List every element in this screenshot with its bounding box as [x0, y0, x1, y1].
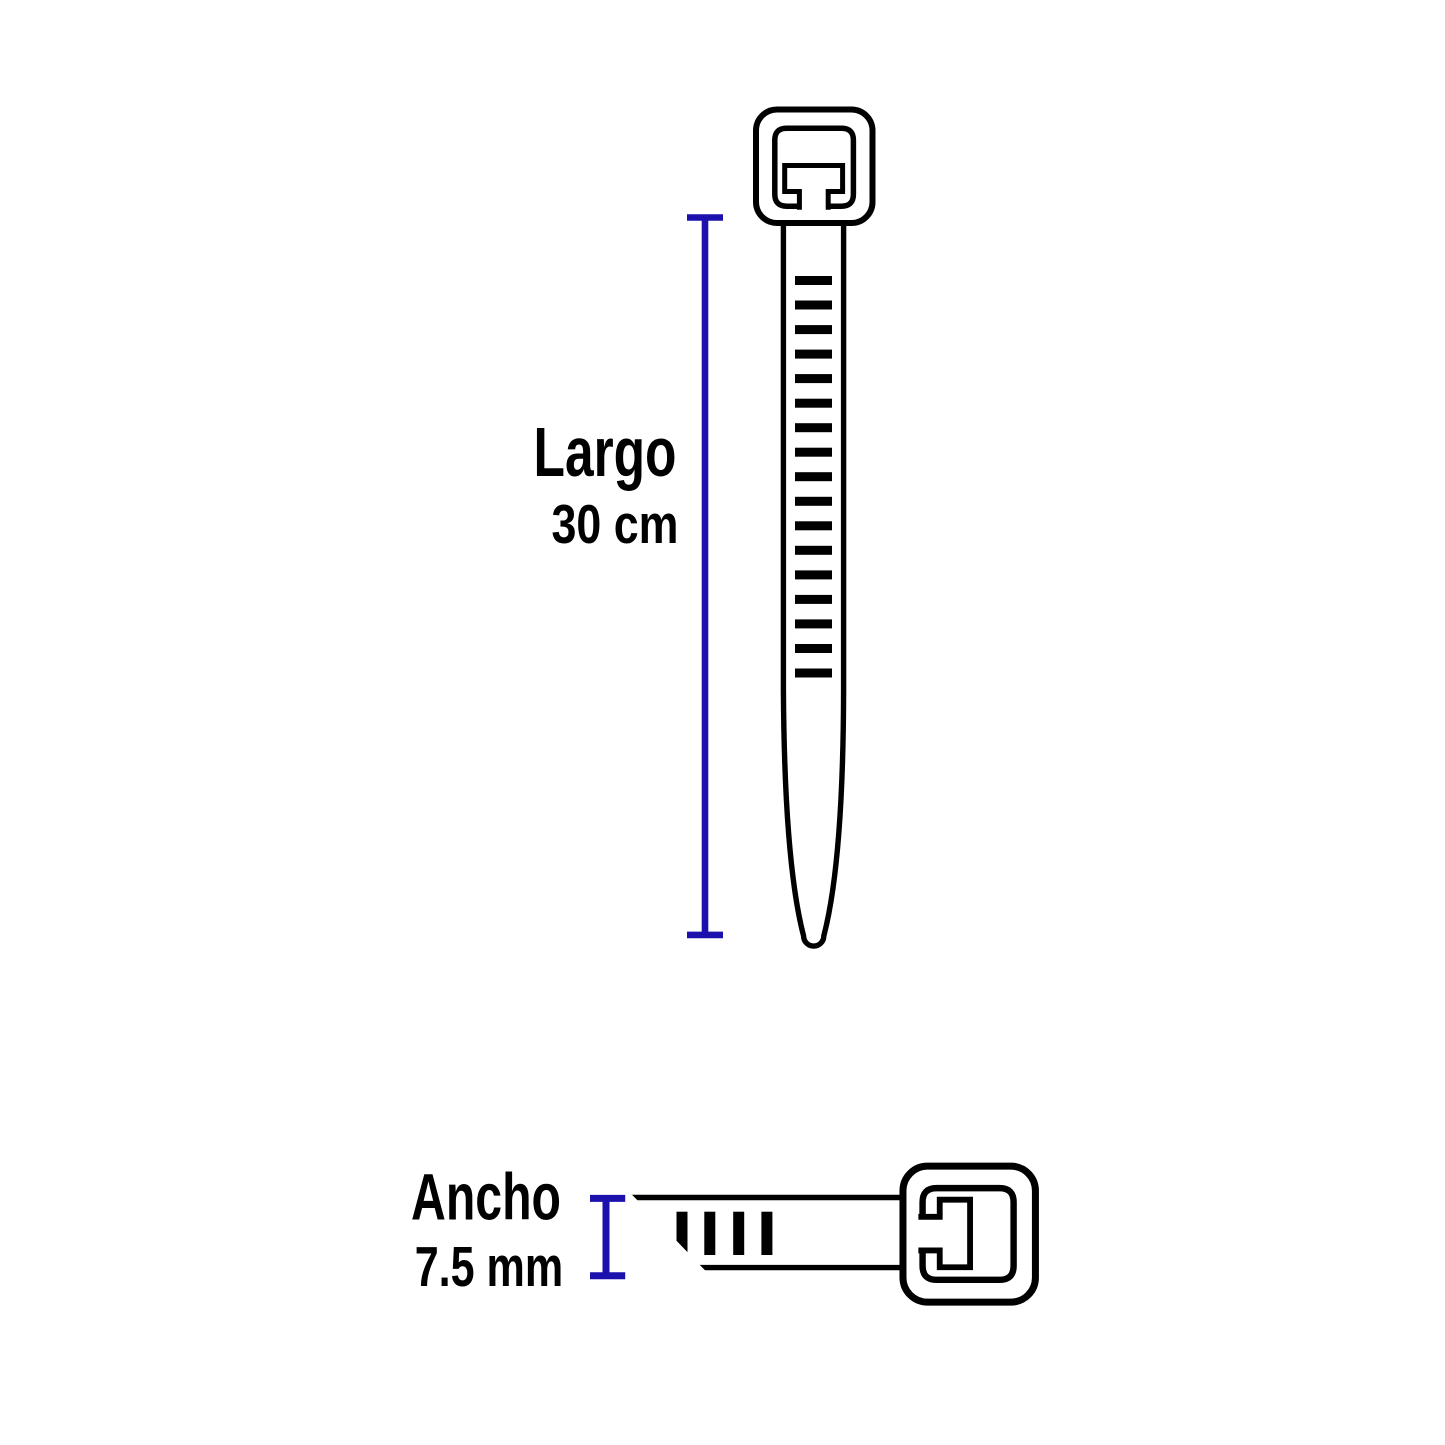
svg-text:7.5 mm: 7.5 mm — [415, 1235, 564, 1298]
svg-text:Ancho: Ancho — [411, 1160, 561, 1234]
svg-text:Largo: Largo — [534, 413, 677, 491]
svg-text:30 cm: 30 cm — [552, 493, 679, 555]
